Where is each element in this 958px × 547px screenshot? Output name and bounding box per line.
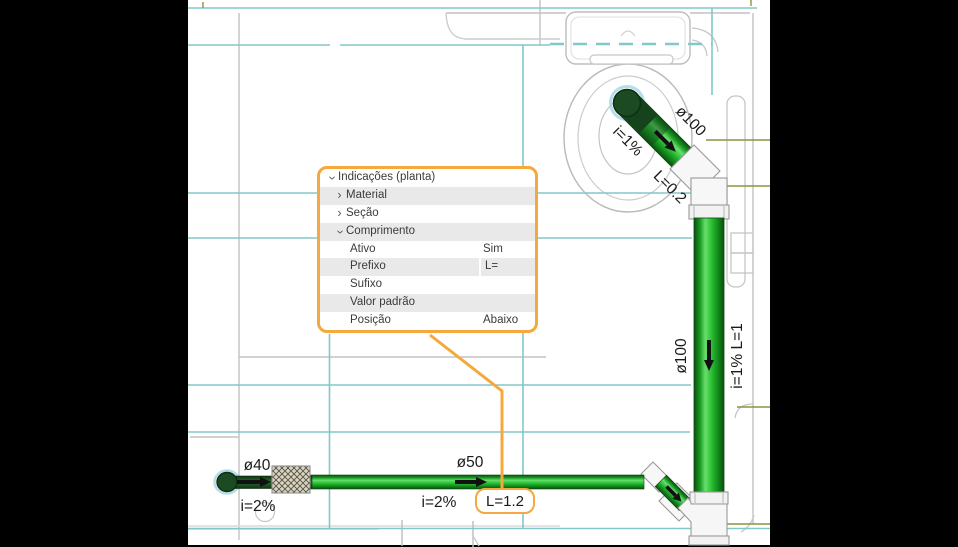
application-viewport: ø40 i=2% ø50 i=2% ø100 i=1% L=1 ø100 i=1… [0,0,958,547]
panel-row-secao[interactable]: › Seção [320,205,535,223]
panel-row-valor-padrao[interactable]: Valor padrão [320,294,535,312]
length-tag-callout[interactable]: L=1.2 [475,488,535,514]
panel-header[interactable]: › Indicações (planta) [320,169,535,187]
indications-panel[interactable]: › Indicações (planta) › Material › Seção… [317,166,538,333]
diameter-label[interactable]: ø40 [244,457,271,474]
panel-row-posicao[interactable]: Posição Abaixo [320,312,535,330]
property-value[interactable]: L= [479,258,535,276]
panel-row-comprimento[interactable]: › Comprimento [320,223,535,241]
diameter-label[interactable]: ø50 [457,454,484,471]
property-value[interactable]: Abaixo [479,312,535,330]
slope-length-label[interactable]: i=1% L=1 [729,323,746,389]
panel-title: Indicações (planta) [338,169,464,187]
panel-row-sufixo[interactable]: Sufixo [320,276,535,294]
property-value[interactable]: Sim [479,241,535,259]
chevron-right-icon[interactable]: › [333,187,346,205]
chevron-right-icon[interactable]: › [333,205,346,223]
stack-pipe[interactable] [694,218,724,494]
slope-label[interactable]: i=2% [241,498,276,515]
chevron-down-icon[interactable]: › [331,225,349,238]
pipe-end-cap[interactable] [217,473,237,492]
diameter-label[interactable]: ø100 [673,338,690,374]
pipe-end-hub[interactable] [614,90,641,117]
slope-label[interactable]: i=2% [422,494,457,511]
branch-pipe-50[interactable] [306,475,644,489]
panel-row-prefixo[interactable]: Prefixo L= [320,258,535,276]
reducer-fitting[interactable] [272,466,310,493]
panel-row-ativo[interactable]: Ativo Sim [320,241,535,259]
chevron-down-icon[interactable]: › [323,172,341,185]
length-tag-value: L=1.2 [486,493,524,510]
panel-row-material[interactable]: › Material [320,187,535,205]
